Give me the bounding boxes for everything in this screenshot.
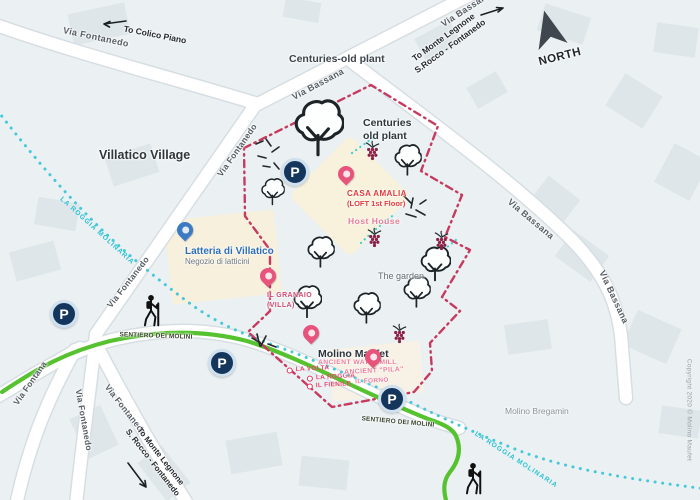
hiker-icon xyxy=(467,463,480,493)
shrub-marks-icon xyxy=(256,139,279,169)
poi-label-casa-amalia-sub: (LOFT 1st Floor) xyxy=(347,199,405,208)
poi-label-latteria-sub: Negozio di latticini xyxy=(185,257,249,266)
poi-label-centuries-top: Centuries-old plant xyxy=(289,53,385,65)
parking-badge: P xyxy=(281,158,309,186)
poi-label-latteria: Latteria di Villatico xyxy=(185,246,274,257)
map-graphics xyxy=(0,0,700,500)
hiker-icon xyxy=(145,295,158,325)
parking-badge: P xyxy=(50,300,78,328)
poi-bullet-icon xyxy=(307,375,313,381)
poi-label-granaio-sub: (VILLA) xyxy=(267,302,295,309)
region-label: Villatico Village xyxy=(99,148,190,162)
poi-label-bregamin: Molino Bregamin xyxy=(505,406,569,416)
map-canvas[interactable]: Via Fontanedo To Colico Piano Centuries-… xyxy=(0,0,700,500)
poi-bullet-icon xyxy=(287,367,293,373)
poi-label-granaio: IL GRANAIO xyxy=(267,292,312,299)
arrow-to-monte-top-icon xyxy=(481,8,503,16)
poi-label-garden: The garden xyxy=(378,271,424,281)
centuries-old-tree-icon xyxy=(296,101,343,155)
poi-bullet-icon xyxy=(307,383,313,389)
poi-label-molino-sub: ANCIENT WATERMILL xyxy=(318,359,397,366)
poi-label-centuries-inner: Centuries old plant xyxy=(363,117,411,143)
poi-label-casa-amalia: CASA AMALIA xyxy=(347,189,407,198)
centuries-inner-line2: old plant xyxy=(363,130,407,142)
parking-badge: P xyxy=(378,385,406,413)
parking-badge: P xyxy=(208,349,236,377)
copyright-label: Copyright 2020 © Molino Maufet xyxy=(686,359,693,461)
centuries-inner-line1: Centuries xyxy=(363,117,411,129)
vine-row-icon xyxy=(404,196,426,217)
poi-label-host-house: Host House xyxy=(348,216,400,226)
